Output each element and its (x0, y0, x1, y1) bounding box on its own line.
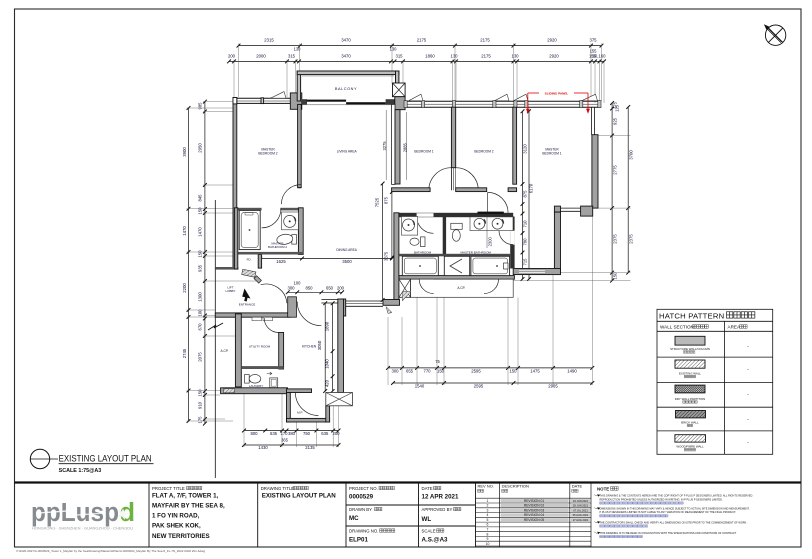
svg-text:200: 200 (332, 431, 340, 436)
svg-text:5: 5 (487, 518, 489, 522)
svg-text:770: 770 (423, 369, 431, 374)
svg-text:BEDROOM 1: BEDROOM 1 (542, 151, 561, 155)
svg-text:M.P.: M.P. (297, 411, 303, 415)
svg-text:875: 875 (384, 196, 389, 204)
svg-text:2000: 2000 (256, 54, 266, 59)
svg-text:380: 380 (288, 431, 296, 436)
svg-text:DATE: DATE (422, 486, 433, 491)
svg-text:2075: 2075 (198, 352, 203, 362)
svg-text:2300: 2300 (488, 237, 493, 247)
svg-text:DATE: DATE (572, 484, 583, 489)
svg-text:3: 3 (487, 508, 489, 512)
svg-text:THE CONTRACTORS SHALL CHECK AN: THE CONTRACTORS SHALL CHECK AND VERIFY A… (600, 520, 749, 524)
svg-text:SLIDING PANEL: SLIDING PANEL (545, 91, 569, 95)
svg-text:BATHROOM: BATHROOM (414, 250, 432, 254)
svg-text:REVISION 05: REVISION 05 (524, 518, 545, 522)
svg-text:1430: 1430 (258, 445, 268, 450)
svg-text:ELP01: ELP01 (349, 537, 368, 544)
svg-text:125: 125 (615, 104, 620, 112)
svg-text:2135: 2135 (305, 445, 315, 450)
svg-text:655: 655 (406, 369, 414, 374)
svg-text:DRAWN BY: DRAWN BY (349, 507, 372, 512)
svg-text:1860: 1860 (425, 54, 435, 59)
svg-text:0000529: 0000529 (349, 494, 374, 501)
svg-text:WOOD/FIBRE WALL: WOOD/FIBRE WALL (676, 445, 704, 449)
svg-text:2315: 2315 (264, 38, 274, 43)
svg-text:2375: 2375 (629, 234, 634, 244)
svg-text:7: 7 (487, 527, 489, 531)
svg-text:935: 935 (198, 264, 203, 272)
svg-text:2: 2 (487, 504, 489, 508)
svg-text:APPROVED BY: APPROVED BY (422, 507, 453, 512)
svg-text:UTILITY ROOM: UTILITY ROOM (249, 345, 271, 349)
svg-text:2175: 2175 (417, 38, 427, 43)
svg-text:7525: 7525 (375, 197, 380, 207)
svg-text:715: 715 (523, 258, 528, 266)
svg-text:1 FO YIN ROAD,: 1 FO YIN ROAD, (152, 513, 200, 520)
svg-text:2595: 2595 (474, 384, 484, 389)
svg-text:KITCHEN: KITCHEN (302, 345, 317, 349)
svg-text:3900: 3900 (182, 147, 187, 157)
svg-text:SCALE 1:75@A3: SCALE 1:75@A3 (59, 468, 102, 474)
svg-text:6170: 6170 (529, 183, 534, 193)
svg-text:850: 850 (305, 285, 313, 290)
svg-text:150: 150 (509, 369, 517, 374)
svg-text:2375: 2375 (613, 234, 618, 244)
svg-text:845: 845 (198, 194, 203, 202)
svg-text:9: 9 (487, 537, 489, 541)
svg-text:2920: 2920 (549, 54, 559, 59)
svg-text:DRY WALL PARTITION: DRY WALL PARTITION (675, 397, 705, 401)
svg-text:BALCONY: BALCONY (335, 87, 357, 91)
svg-text:130: 130 (511, 54, 519, 59)
svg-text:BEDROOM 1: BEDROOM 1 (414, 149, 433, 153)
svg-text:MC: MC (349, 515, 359, 522)
svg-text:28 JUN 2021: 28 JUN 2021 (573, 504, 589, 508)
svg-text:STRUCTURE WALL/COLUMN: STRUCTURE WALL/COLUMN (670, 347, 710, 351)
svg-text:PROJECT TITLE: PROJECT TITLE (152, 486, 185, 491)
svg-text:ENTRANCE: ENTRANCE (239, 303, 256, 307)
svg-text:4: 4 (487, 513, 489, 517)
svg-text:REVISION 01: REVISION 01 (524, 499, 545, 503)
svg-text:DRAWING TITLE: DRAWING TITLE (261, 486, 295, 491)
svg-text:DESCRIPTION: DESCRIPTION (502, 484, 529, 489)
svg-text:2920: 2920 (547, 38, 557, 43)
svg-text:10: 10 (486, 542, 490, 546)
svg-text:REVISION 04: REVISION 04 (524, 513, 545, 517)
svg-text:THIS DRAWING IS TO BE READ IN: THIS DRAWING IS TO BE READ IN CONJUNCTIO… (600, 531, 737, 535)
svg-text:150: 150 (198, 389, 203, 397)
svg-text:875: 875 (523, 190, 528, 198)
svg-text:P PLUS P DESIGNERS LIMITED IS: P PLUS P DESIGNERS LIMITED IS NOT LIABLE… (600, 510, 737, 514)
svg-text:60,160: 60,160 (593, 54, 607, 59)
svg-text:EXISTING LAYOUT PLAN: EXISTING LAYOUT PLAN (59, 453, 152, 463)
svg-text:780: 780 (523, 238, 528, 246)
svg-text:REVISION 02: REVISION 02 (524, 504, 545, 508)
svg-text:1470: 1470 (182, 226, 187, 236)
svg-text:670: 670 (198, 323, 203, 331)
svg-text:2200: 2200 (182, 283, 187, 293)
svg-text:650: 650 (326, 285, 334, 290)
svg-text:04 JUN 2021: 04 JUN 2021 (573, 499, 589, 503)
svg-text:750: 750 (303, 431, 311, 436)
svg-text:MASTER BATHROOM: MASTER BATHROOM (460, 250, 491, 254)
svg-text:2745: 2745 (182, 348, 187, 358)
svg-text:PAK SHEK KOK,: PAK SHEK KOK, (152, 523, 201, 530)
svg-text:1475: 1475 (530, 369, 540, 374)
svg-text:REVISION 03: REVISION 03 (524, 508, 545, 512)
svg-text:17 AUG 2021: 17 AUG 2021 (573, 518, 589, 522)
svg-text:REPRODUCTION PROHIBITED UNLESS: REPRODUCTION PROHIBITED UNLESS AUTHORIZE… (600, 497, 723, 501)
svg-text:EXISTING WALL: EXISTING WALL (679, 372, 701, 376)
svg-text:3700: 3700 (629, 150, 634, 160)
svg-text:315: 315 (395, 54, 403, 59)
svg-text:MAYFAIR BY THE SEA 8,: MAYFAIR BY THE SEA 8, (152, 503, 225, 510)
svg-text:150: 150 (198, 207, 203, 215)
svg-text:LOBBY: LOBBY (225, 289, 235, 293)
svg-text:A.CP.: A.CP. (457, 286, 465, 290)
svg-text:FD.: FD. (247, 258, 252, 262)
svg-text:REV NO.: REV NO. (478, 484, 494, 489)
svg-text:315: 315 (288, 54, 296, 59)
svg-text:AREA: AREA (728, 325, 741, 330)
svg-text:3120: 3120 (523, 144, 528, 154)
svg-text:635: 635 (321, 431, 329, 436)
svg-text:300: 300 (287, 285, 295, 290)
svg-text:6: 6 (487, 523, 489, 527)
svg-text:3275: 3275 (382, 141, 387, 151)
svg-text:A.CP.: A.CP. (221, 349, 229, 353)
svg-text:DIMENSIONS SHOWN IN THIS DRAWI: DIMENSIONS SHOWN IN THIS DRAWING MAY VAR… (600, 506, 750, 510)
svg-text:DRAWING NO.: DRAWING NO. (349, 529, 378, 534)
svg-text:150: 150 (613, 272, 618, 280)
svg-text:2175: 2175 (481, 54, 491, 59)
svg-text:1: 1 (487, 499, 489, 503)
svg-text:WL: WL (422, 516, 432, 523)
svg-text:300: 300 (391, 369, 399, 374)
svg-text:DINING AREA: DINING AREA (336, 248, 357, 252)
svg-text:HATCH PATTERN: HATCH PATTERN (659, 311, 724, 320)
svg-text:1470: 1470 (198, 227, 203, 237)
svg-text:365: 365 (281, 438, 289, 443)
svg-text:200: 200 (228, 54, 236, 59)
svg-text:LIVING AREA: LIVING AREA (337, 149, 358, 153)
svg-text:THIS DRAWING & THE CONTENTS HE: THIS DRAWING & THE CONTENTS HEREIN ARE T… (600, 494, 754, 498)
svg-text:NOTE: NOTE (597, 487, 609, 492)
svg-text:BEDROOM 2: BEDROOM 2 (474, 149, 493, 153)
svg-text:3470: 3470 (341, 54, 351, 59)
svg-text:635: 635 (270, 431, 278, 436)
svg-text:3375: 3375 (384, 251, 389, 261)
svg-text:07 JUL 2021: 07 JUL 2021 (573, 508, 588, 512)
svg-text:1540: 1540 (415, 384, 425, 389)
svg-text:2175: 2175 (480, 38, 490, 43)
svg-text:150: 150 (437, 369, 445, 374)
svg-text:NEW TERRITORIES: NEW TERRITORIES (152, 533, 210, 540)
svg-text:130: 130 (450, 54, 458, 59)
svg-text:100: 100 (294, 281, 302, 286)
svg-text:985: 985 (198, 102, 203, 110)
svg-text:2775: 2775 (613, 165, 618, 175)
svg-text:WALL SECTION: WALL SECTION (660, 325, 694, 330)
svg-text:2885: 2885 (403, 142, 408, 152)
svg-text:925: 925 (613, 117, 618, 125)
svg-text:910: 910 (198, 401, 203, 409)
svg-text:175: 175 (198, 416, 203, 424)
svg-text:FLAT A, 7/F, TOWER 1,: FLAT A, 7/F, TOWER 1, (152, 493, 219, 500)
svg-text:12 APR 2021: 12 APR 2021 (422, 494, 459, 501)
svg-text:710: 710 (523, 220, 528, 228)
svg-text:PROJECT NO.: PROJECT NO. (349, 486, 378, 491)
svg-text:200: 200 (337, 285, 345, 290)
svg-text:8: 8 (487, 532, 489, 536)
svg-text:1625: 1625 (276, 259, 286, 264)
svg-text:130: 130 (294, 47, 302, 52)
svg-text:150: 150 (198, 250, 203, 258)
svg-text:375: 375 (589, 38, 597, 43)
svg-text:3050: 3050 (317, 340, 322, 350)
svg-text:A.S.@A3: A.S.@A3 (422, 537, 449, 544)
svg-text:SCALE: SCALE (422, 529, 436, 534)
svg-text:V:\2020-0027\A-0000529_Tower 1: V:\2020-0027\A-0000529_Tower 1_Mayfair b… (16, 549, 205, 553)
svg-text:EXISTING LAYOUT PLAN: EXISTING LAYOUT PLAN (262, 493, 337, 500)
svg-text:05 AUG 2021: 05 AUG 2021 (573, 513, 589, 517)
svg-text:3500: 3500 (342, 259, 352, 264)
svg-text:130: 130 (390, 47, 398, 52)
svg-text:800: 800 (250, 431, 258, 436)
svg-text:2965: 2965 (548, 384, 558, 389)
svg-text:3470: 3470 (341, 38, 351, 43)
svg-text:2950: 2950 (198, 143, 203, 153)
svg-text:BATHROOM 2: BATHROOM 2 (268, 245, 287, 249)
svg-text:1300: 1300 (198, 292, 203, 302)
svg-text:2595: 2595 (471, 369, 481, 374)
svg-text:75: 75 (435, 359, 440, 364)
svg-text:BRICK WALL: BRICK WALL (681, 420, 699, 424)
svg-text:BEDROOM 2: BEDROOM 2 (258, 151, 277, 155)
svg-text:HONGKONG · SHENZHEN · GUANGZHO: HONGKONG · SHENZHEN · GUANGZHOU · CHENGD… (32, 527, 134, 531)
svg-text:1490: 1490 (567, 369, 577, 374)
svg-text:155: 155 (590, 49, 598, 54)
